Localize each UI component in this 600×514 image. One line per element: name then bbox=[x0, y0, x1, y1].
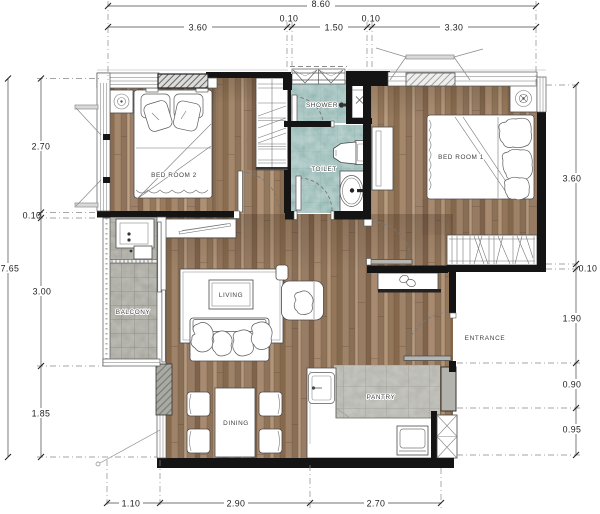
svg-text:ENTRANCE: ENTRANCE bbox=[465, 335, 506, 342]
svg-text:0.90: 0.90 bbox=[563, 380, 582, 390]
svg-text:2.70: 2.70 bbox=[367, 499, 386, 509]
svg-text:BED ROOM 2: BED ROOM 2 bbox=[151, 172, 197, 179]
svg-text:0.95: 0.95 bbox=[563, 425, 582, 435]
svg-text:SHOWER: SHOWER bbox=[306, 102, 338, 109]
svg-text:BED ROOM 1: BED ROOM 1 bbox=[438, 154, 484, 161]
svg-text:3.30: 3.30 bbox=[445, 23, 464, 33]
svg-text:LIVING: LIVING bbox=[219, 292, 243, 299]
svg-text:8.60: 8.60 bbox=[312, 0, 331, 9]
svg-text:2.90: 2.90 bbox=[227, 499, 246, 509]
svg-text:7.65: 7.65 bbox=[1, 264, 20, 274]
svg-text:3.60: 3.60 bbox=[563, 174, 582, 184]
svg-text:BALCONY: BALCONY bbox=[116, 309, 151, 316]
svg-text:0.10: 0.10 bbox=[579, 264, 598, 274]
svg-text:DINING: DINING bbox=[223, 420, 249, 427]
svg-text:1.85: 1.85 bbox=[32, 409, 51, 419]
svg-text:PANTRY: PANTRY bbox=[367, 394, 396, 401]
svg-text:0.10: 0.10 bbox=[362, 14, 381, 24]
svg-text:TOILET: TOILET bbox=[311, 166, 337, 173]
svg-text:1.50: 1.50 bbox=[325, 23, 344, 33]
svg-text:1.90: 1.90 bbox=[563, 314, 582, 324]
svg-text:0.10: 0.10 bbox=[280, 14, 299, 24]
svg-text:0.10: 0.10 bbox=[23, 211, 42, 221]
svg-text:1.10: 1.10 bbox=[122, 499, 141, 509]
svg-text:3.00: 3.00 bbox=[33, 287, 52, 297]
svg-text:2.70: 2.70 bbox=[32, 142, 51, 152]
svg-text:3.60: 3.60 bbox=[189, 23, 208, 33]
